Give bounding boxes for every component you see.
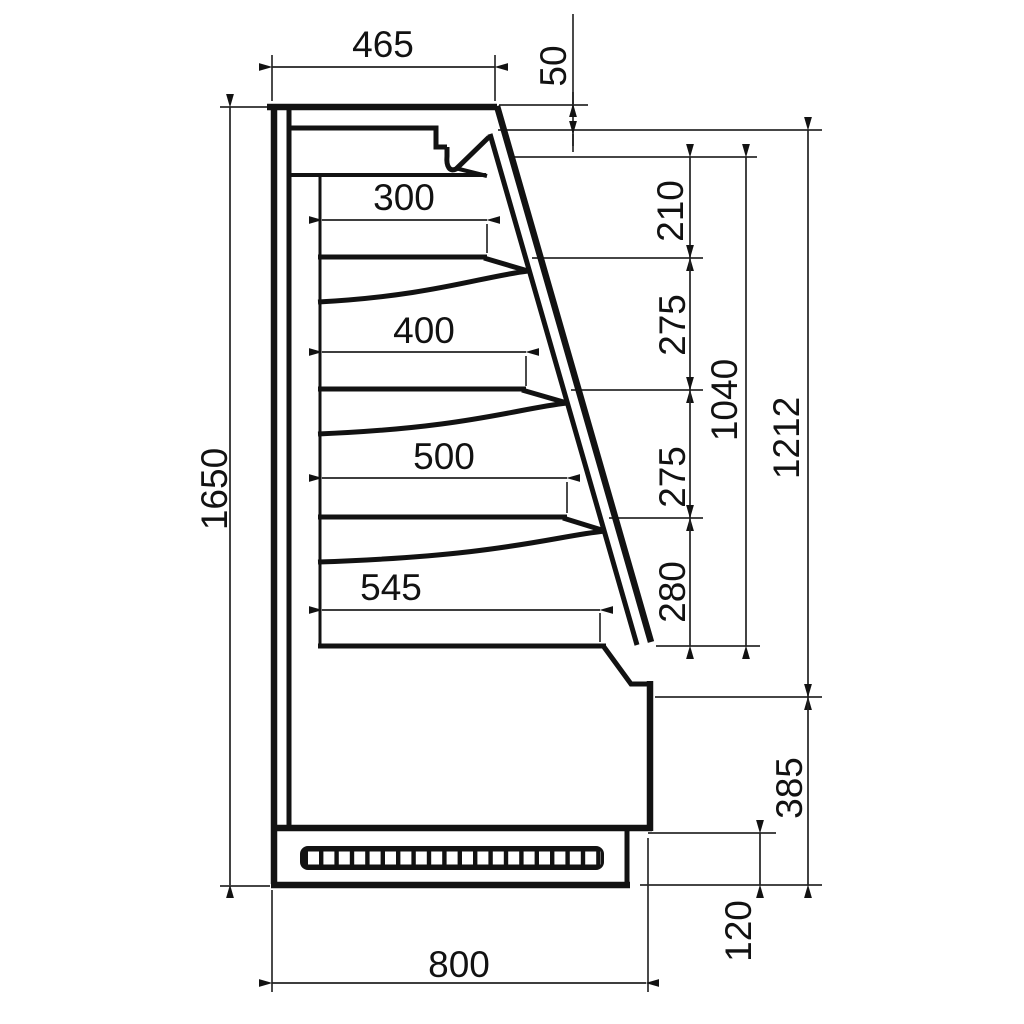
front-glass-outer <box>497 106 651 642</box>
dim-label-shelf2-depth: 400 <box>393 310 455 351</box>
dim-label-spacing-275b: 275 <box>652 446 693 508</box>
dim-label-base-shelf-depth: 545 <box>360 567 422 608</box>
canopy-hook-detail <box>447 137 489 170</box>
technical-drawing: 465 50 300 400 500 545 210 275 275 280 1… <box>0 0 1024 1024</box>
dim-label-spacing-275a: 275 <box>652 294 693 356</box>
drawing-sheet: 465 50 300 400 500 545 210 275 275 280 1… <box>0 0 1024 1024</box>
cabinet-outline <box>267 104 652 886</box>
shelf-3 <box>318 517 605 562</box>
dim-label-lower-front-height: 385 <box>769 757 810 819</box>
dim-label-spacing-210: 210 <box>650 180 691 242</box>
dim-label-spacing-280: 280 <box>652 561 693 623</box>
dim-label-display-opening-height: 1040 <box>704 359 745 441</box>
dim-label-front-glass-height: 1212 <box>766 397 807 479</box>
shelf-2 <box>318 389 567 434</box>
dim-label-canopy-lip: 50 <box>533 45 574 86</box>
dim-label-shelf3-depth: 500 <box>413 436 475 477</box>
dim-label-total-height: 1650 <box>194 448 235 530</box>
front-step <box>604 647 652 684</box>
dim-label-shelf1-depth: 300 <box>373 177 435 218</box>
ventilation-grille <box>300 846 604 870</box>
dim-label-top-depth: 465 <box>352 24 414 65</box>
dim-label-total-depth: 800 <box>428 944 490 985</box>
shelf-1 <box>318 257 528 302</box>
dimension-lines <box>230 67 808 983</box>
extension-lines <box>220 14 822 992</box>
dim-label-plinth-height: 120 <box>718 900 759 962</box>
